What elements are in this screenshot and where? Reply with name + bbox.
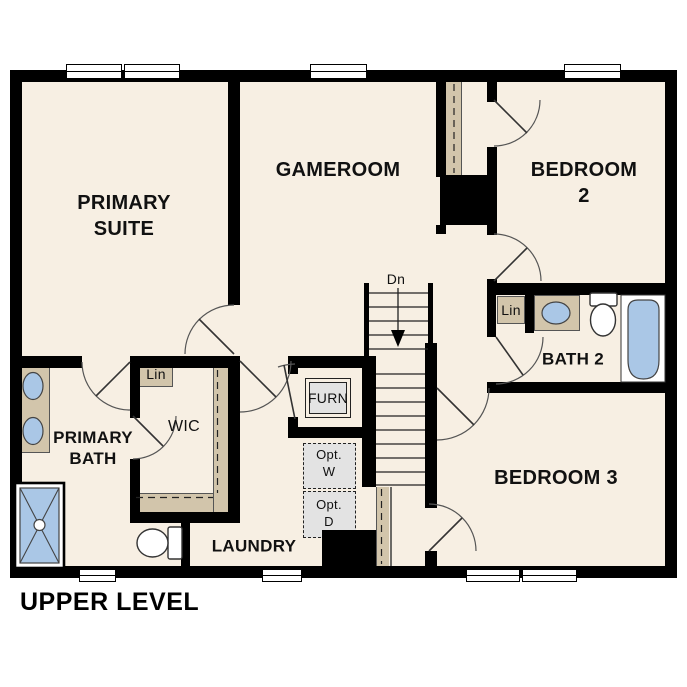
- room-label-gameroom: GAMEROOM: [276, 157, 401, 183]
- wall: [436, 225, 446, 234]
- window: [66, 64, 122, 79]
- label-furnace: FURN: [308, 389, 348, 407]
- label-optional-dryer: Opt. D: [316, 497, 342, 531]
- wall: [10, 70, 22, 578]
- plan-title: UPPER LEVEL: [20, 588, 199, 617]
- wall: [487, 295, 496, 337]
- wall: [425, 551, 437, 566]
- window: [124, 64, 180, 79]
- attic-chase: [446, 82, 462, 175]
- label-optional-washer: Opt. W: [316, 447, 342, 481]
- window: [79, 569, 116, 582]
- window: [466, 569, 520, 582]
- wall: [665, 70, 677, 578]
- room-label-laundry: LAUNDRY: [212, 535, 297, 556]
- wall: [288, 427, 368, 438]
- wall: [425, 343, 437, 486]
- room-label-primary-suite: PRIMARY SUITE: [77, 190, 171, 242]
- wall: [288, 368, 298, 374]
- wic-shelving: [134, 493, 213, 512]
- bath2-vanity: [534, 295, 580, 331]
- wall: [228, 70, 240, 305]
- wall: [288, 356, 368, 368]
- label-linen-bath2: Lin: [501, 301, 521, 319]
- window: [262, 569, 302, 582]
- wall: [322, 530, 376, 572]
- floor-plan: PRIMARY SUITE GAMEROOM BEDROOM 2 BATH 2 …: [0, 0, 687, 687]
- wall: [487, 225, 497, 235]
- window: [564, 64, 621, 79]
- wall: [228, 368, 240, 523]
- chase-block: [440, 175, 497, 225]
- label-stairs-down: Dn: [387, 270, 406, 288]
- wall: [181, 512, 190, 566]
- wall: [436, 70, 446, 177]
- wall: [487, 382, 677, 393]
- label-linen-wic: Lin: [146, 365, 166, 383]
- window: [522, 569, 577, 582]
- wall: [525, 295, 534, 333]
- stair-landing-wall: [376, 487, 389, 566]
- wall: [130, 356, 140, 418]
- wall: [487, 70, 497, 102]
- wic-shelving: [213, 368, 229, 512]
- room-label-wic: WIC: [168, 418, 200, 436]
- room-label-bath2: BATH 2: [542, 348, 604, 369]
- window: [310, 64, 367, 79]
- wall: [425, 486, 437, 508]
- room-label-bedroom3: BEDROOM 3: [494, 465, 618, 491]
- stair-rail: [364, 283, 369, 358]
- room-label-bedroom2: BEDROOM 2: [531, 157, 638, 209]
- room-label-primary-bath: PRIMARY BATH: [53, 427, 133, 470]
- wall: [487, 147, 497, 177]
- wall: [10, 356, 82, 368]
- wall: [487, 283, 677, 295]
- wall: [362, 356, 376, 487]
